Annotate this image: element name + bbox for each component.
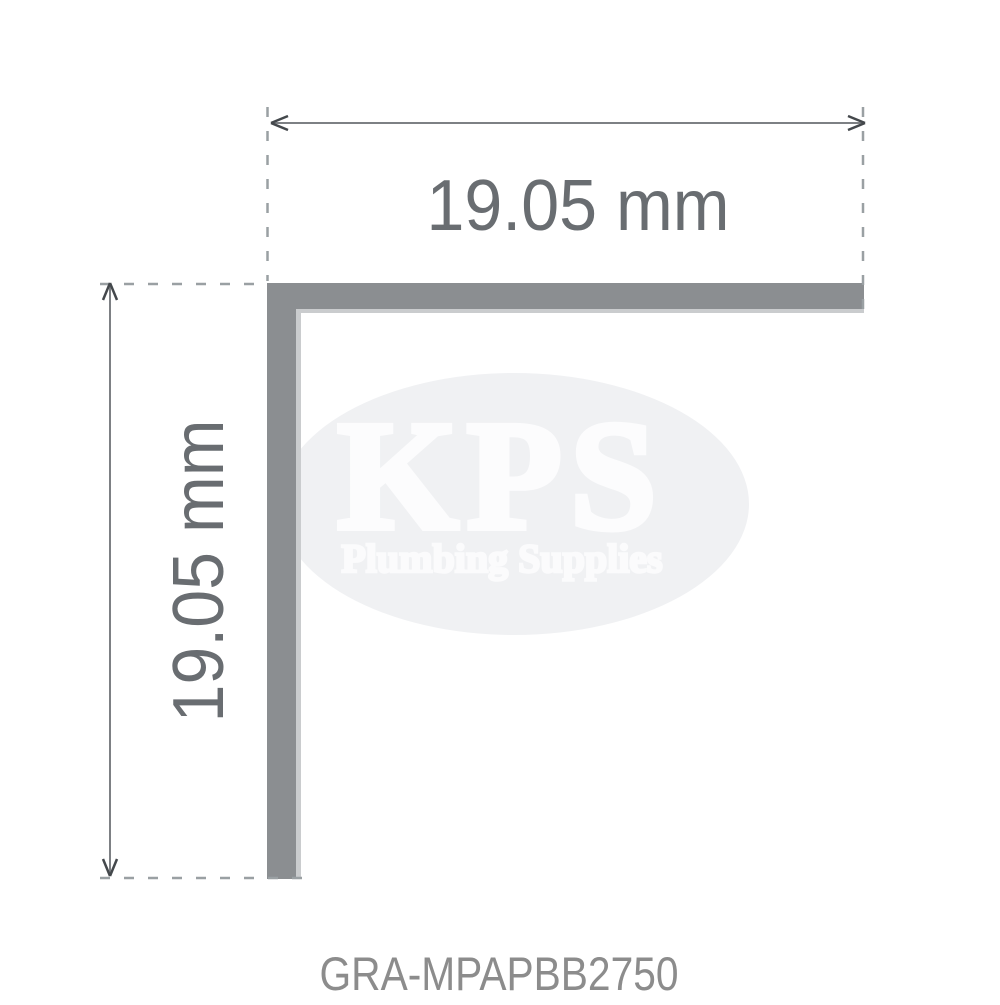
svg-text:19.05 mm: 19.05 mm — [159, 420, 239, 723]
svg-text:Plumbing Supplies: Plumbing Supplies — [341, 536, 662, 581]
svg-text:19.05 mm: 19.05 mm — [427, 166, 730, 246]
svg-text:GRA-MPAPBB2750: GRA-MPAPBB2750 — [320, 947, 679, 1000]
